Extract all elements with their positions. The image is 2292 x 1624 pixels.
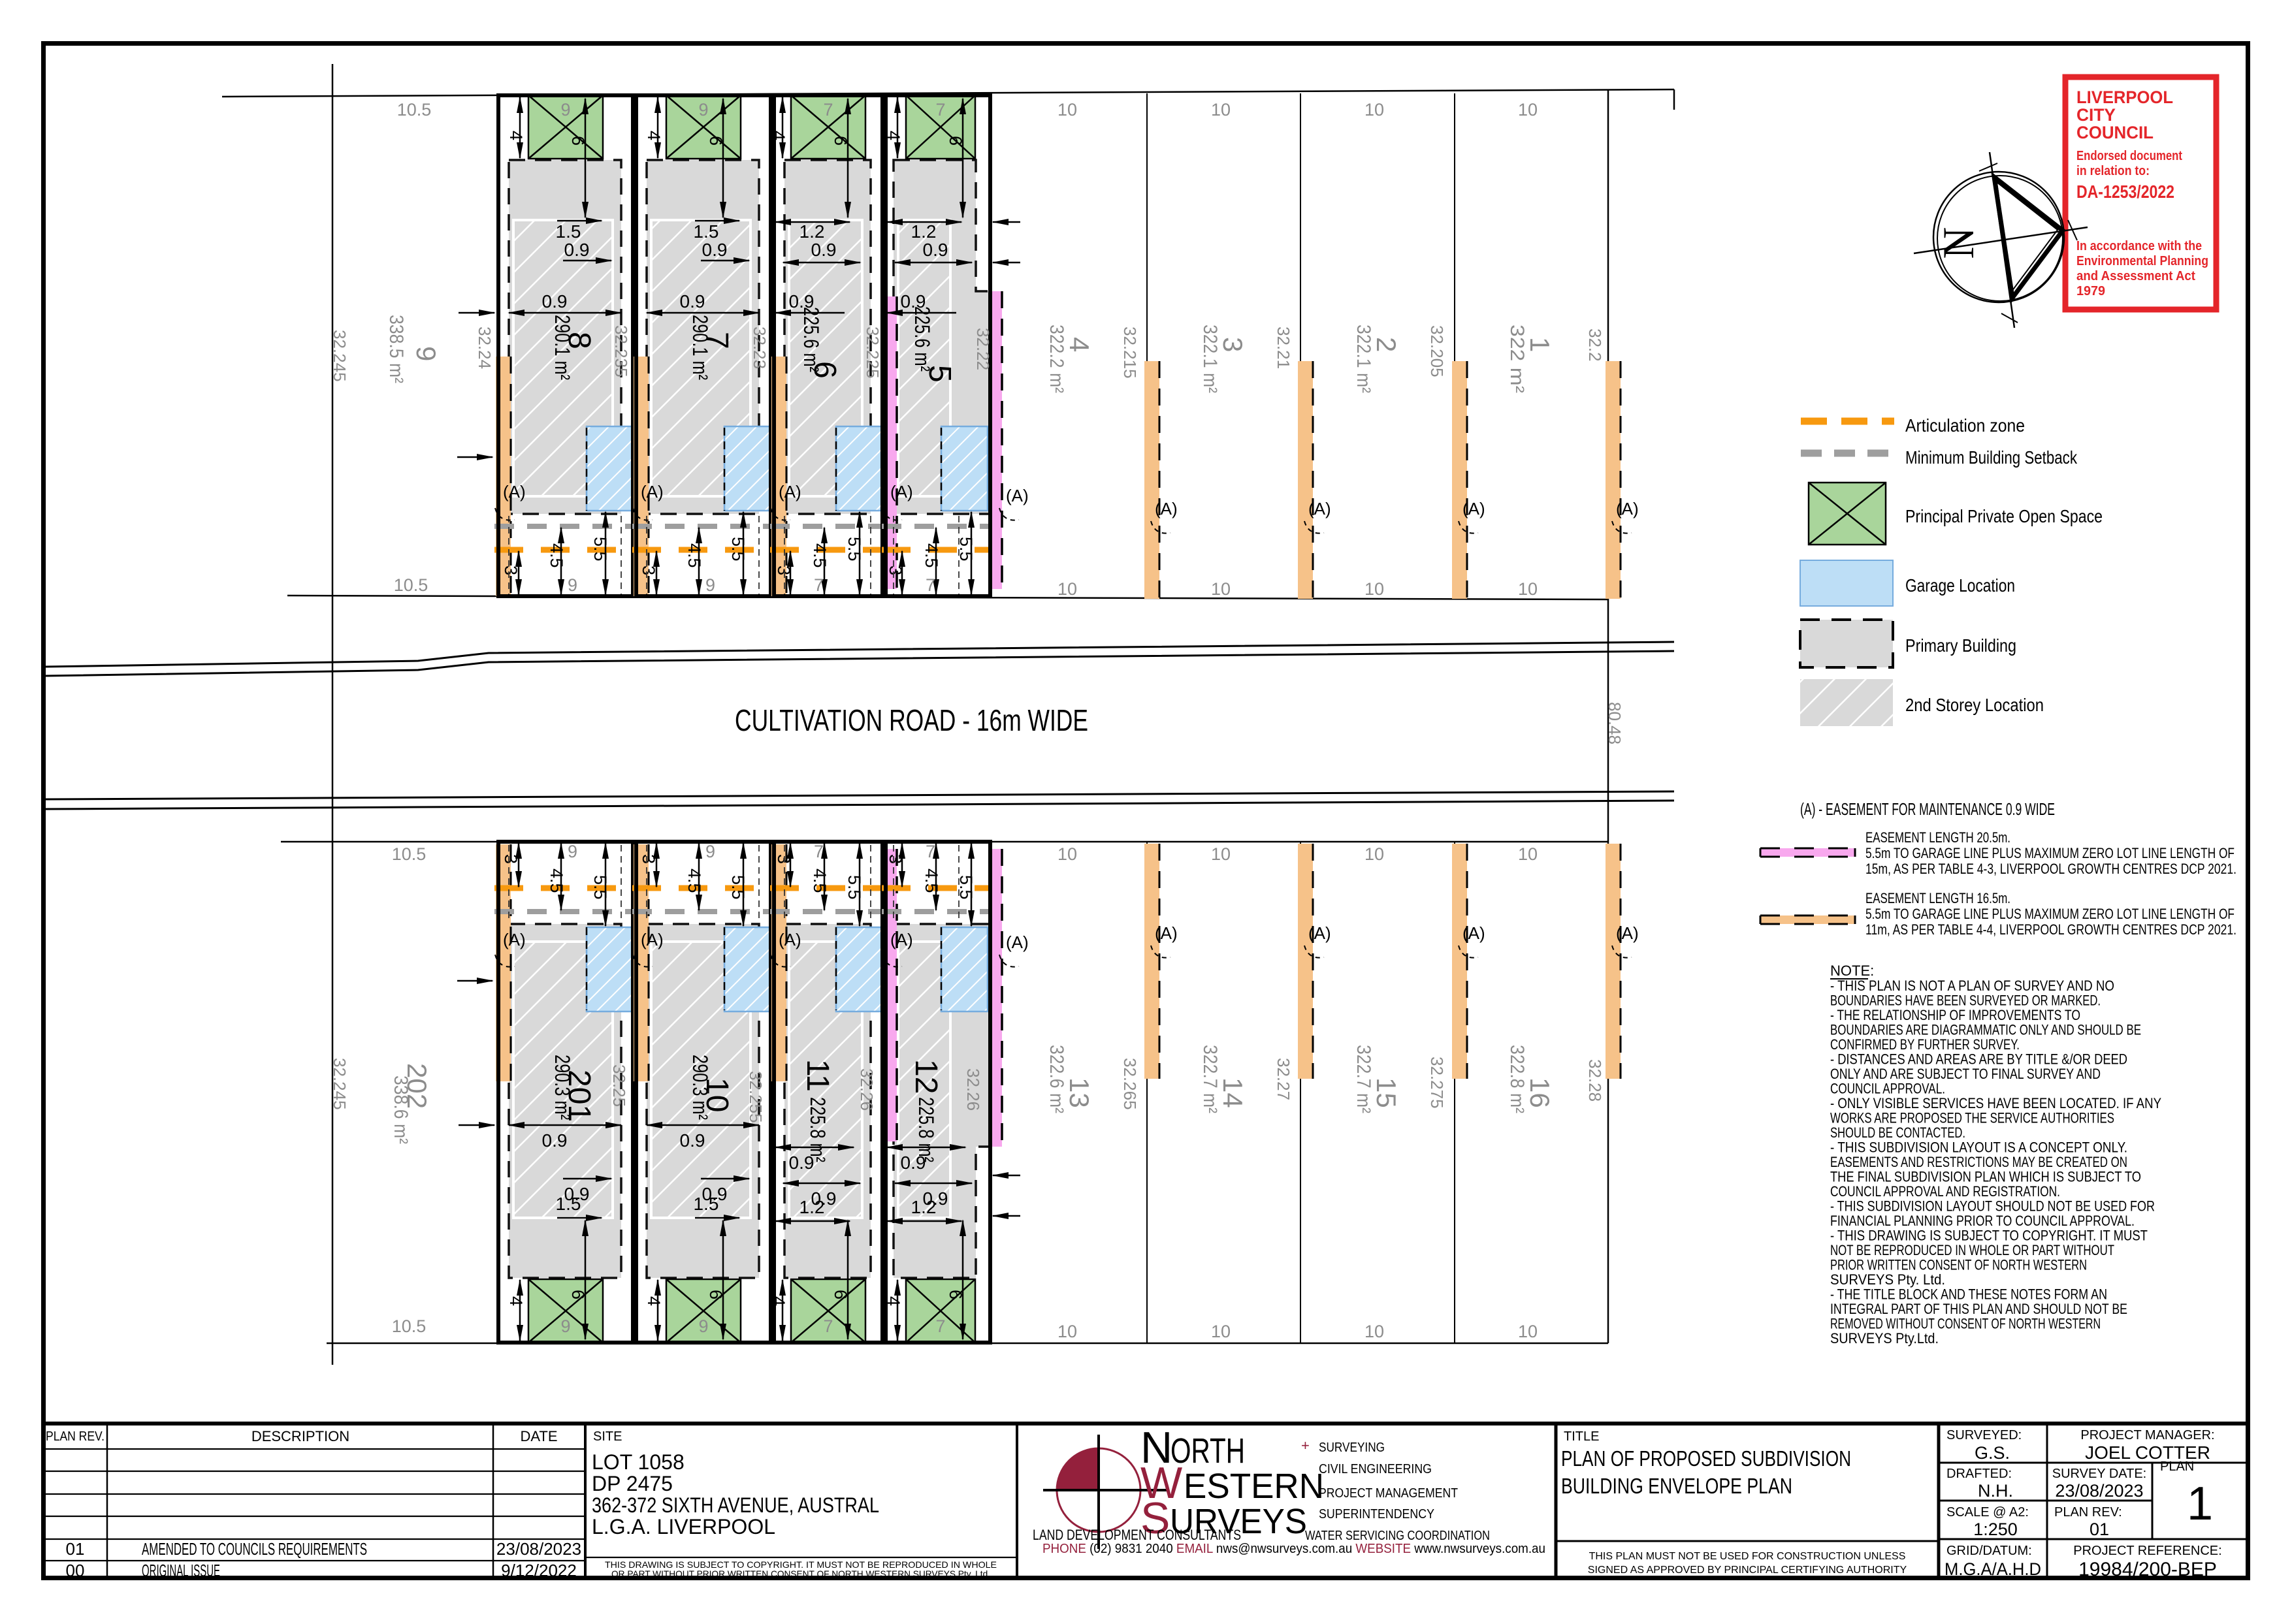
- svg-text:9: 9: [698, 1316, 708, 1336]
- svg-text:4.5: 4.5: [685, 868, 704, 893]
- svg-text:BOUNDARIES ARE DIAGRAMMATIC ON: BOUNDARIES ARE DIAGRAMMATIC ONLY AND SHO…: [1830, 1022, 2141, 1038]
- svg-text:(A): (A): [1616, 923, 1639, 943]
- svg-text:01: 01: [2090, 1520, 2109, 1539]
- svg-text:4: 4: [506, 1296, 526, 1306]
- svg-text:1: 1: [2187, 1478, 2213, 1530]
- svg-text:BUILDING ENVELOPE PLAN: BUILDING ENVELOPE PLAN: [1561, 1474, 1792, 1498]
- svg-text:(A): (A): [1155, 923, 1178, 943]
- svg-text:CULTIVATION ROAD - 16m WIDE: CULTIVATION ROAD - 16m WIDE: [735, 703, 1088, 737]
- svg-text:1.5: 1.5: [694, 1194, 719, 1214]
- svg-text:01: 01: [66, 1539, 85, 1559]
- svg-text:FINANCIAL PLANNING PRIOR TO CO: FINANCIAL PLANNING PRIOR TO COUNCIL APPR…: [1830, 1213, 2135, 1229]
- svg-text:1.5: 1.5: [556, 221, 581, 242]
- svg-text:ESTERN: ESTERN: [1184, 1467, 1324, 1506]
- svg-text:4.5: 4.5: [547, 868, 566, 893]
- svg-text:COUNCIL: COUNCIL: [2076, 123, 2154, 142]
- svg-text:PLAN REV:: PLAN REV:: [2054, 1505, 2122, 1520]
- svg-text:COUNCIL APPROVAL AND REGISTRAT: COUNCIL APPROVAL AND REGISTRATION.: [1830, 1183, 2060, 1200]
- svg-text:4.5: 4.5: [547, 543, 566, 568]
- svg-text:10: 10: [1518, 1322, 1538, 1341]
- svg-text:322.2 m²: 322.2 m²: [1046, 325, 1067, 393]
- svg-text:- THIS SUBDIVISION LAYOUT SHOU: - THIS SUBDIVISION LAYOUT SHOULD NOT BE …: [1830, 1198, 2155, 1215]
- svg-text:PLAN OF PROPOSED SUBDIVISION: PLAN OF PROPOSED SUBDIVISION: [1561, 1446, 1851, 1471]
- svg-text:LAND DEVELOPMENT CONSULTANTS: LAND DEVELOPMENT CONSULTANTS: [1033, 1527, 1241, 1543]
- svg-text:4: 4: [884, 1296, 903, 1306]
- svg-text:M.G.A/A.H.D: M.G.A/A.H.D: [1945, 1559, 2041, 1579]
- svg-text:12: 12: [909, 1059, 943, 1094]
- svg-text:EASEMENTS AND RESTRICTIONS MAY: EASEMENTS AND RESTRICTIONS MAY BE CREATE…: [1830, 1154, 2127, 1170]
- svg-text:4.5: 4.5: [810, 543, 830, 568]
- svg-text:4: 4: [1064, 337, 1095, 352]
- svg-text:3: 3: [886, 565, 905, 575]
- svg-text:N.H.: N.H.: [1978, 1481, 2013, 1501]
- svg-text:7: 7: [935, 1316, 945, 1336]
- svg-text:1.2: 1.2: [799, 1197, 825, 1217]
- svg-text:4: 4: [506, 131, 526, 140]
- svg-text:32.26: 32.26: [963, 1068, 983, 1111]
- svg-text:PLAN REV.: PLAN REV.: [46, 1429, 105, 1444]
- svg-text:32.24: 32.24: [475, 326, 494, 369]
- svg-text:80.48: 80.48: [1605, 702, 1624, 744]
- svg-text:32.235: 32.235: [611, 325, 631, 377]
- svg-text:CIVIL ENGINEERING: CIVIL ENGINEERING: [1319, 1462, 1432, 1476]
- svg-text:1.2: 1.2: [911, 221, 937, 242]
- svg-text:1.2: 1.2: [799, 221, 825, 242]
- svg-text:10: 10: [1057, 1322, 1077, 1341]
- svg-text:9: 9: [705, 842, 715, 861]
- svg-text:(A): (A): [1308, 923, 1331, 943]
- svg-text:Endorsed document: Endorsed document: [2076, 149, 2182, 163]
- svg-text:(A): (A): [1616, 499, 1639, 518]
- svg-text:NOT BE REPRODUCED IN WHOLE OR: NOT BE REPRODUCED IN WHOLE OR PART WITHO…: [1830, 1242, 2114, 1258]
- svg-text:(A): (A): [890, 930, 913, 949]
- svg-text:DATE: DATE: [520, 1428, 557, 1444]
- svg-text:10: 10: [1364, 100, 1384, 119]
- svg-text:(A): (A): [503, 930, 526, 949]
- svg-text:THIS PLAN MUST NOT BE USED FOR: THIS PLAN MUST NOT BE USED FOR CONSTRUCT…: [1589, 1551, 1906, 1562]
- svg-text:CONFIRMED BY FURTHER SURVEY.: CONFIRMED BY FURTHER SURVEY.: [1830, 1036, 2020, 1053]
- svg-text:0.9: 0.9: [542, 1130, 568, 1151]
- svg-text:- THE TITLE BLOCK AND THESE NO: - THE TITLE BLOCK AND THESE NOTES FORM A…: [1830, 1286, 2107, 1303]
- svg-text:- ONLY VISIBLE SERVICES HAVE B: - ONLY VISIBLE SERVICES HAVE BEEN LOCATE…: [1830, 1095, 2161, 1111]
- svg-text:23/08/2023: 23/08/2023: [496, 1539, 581, 1559]
- svg-text:PRIOR WRITTEN CONSENT OF NORTH: PRIOR WRITTEN CONSENT OF NORTH WESTERN: [1830, 1257, 2087, 1273]
- svg-text:GRID/DATUM:: GRID/DATUM:: [1946, 1544, 2032, 1558]
- svg-text:(A): (A): [641, 482, 664, 502]
- svg-text:3: 3: [886, 854, 905, 864]
- svg-text:G.S.: G.S.: [1975, 1443, 2010, 1463]
- svg-text:32.25: 32.25: [609, 1064, 629, 1107]
- svg-text:SURVEYS Pty.Ltd.: SURVEYS Pty.Ltd.: [1830, 1330, 1939, 1346]
- svg-text:0.9: 0.9: [923, 240, 948, 260]
- svg-text:(A): (A): [890, 482, 913, 502]
- svg-text:15: 15: [1371, 1077, 1402, 1108]
- svg-text:9/12/2022: 9/12/2022: [501, 1561, 577, 1580]
- svg-text:4: 4: [644, 1296, 664, 1306]
- svg-text:Principal Private Open Space: Principal Private Open Space: [1905, 506, 2103, 526]
- svg-text:EASEMENT LENGTH 20.5m.: EASEMENT LENGTH 20.5m.: [1865, 829, 2010, 846]
- svg-text:32.21: 32.21: [1274, 326, 1293, 369]
- svg-text:202: 202: [402, 1063, 432, 1109]
- svg-text:6: 6: [706, 1290, 726, 1299]
- svg-text:201: 201: [562, 1070, 596, 1122]
- svg-text:- THIS DRAWING IS SUBJECT TO C: - THIS DRAWING IS SUBJECT TO COPYRIGHT. …: [1830, 1228, 2148, 1244]
- svg-text:- DISTANCES AND AREAS ARE BY T: - DISTANCES AND AREAS ARE BY TITLE &/OR …: [1830, 1051, 2127, 1068]
- svg-text:Environmental Planning: Environmental Planning: [2076, 254, 2208, 268]
- svg-text:SIGNED AS APPROVED BY PRINCIPA: SIGNED AS APPROVED BY PRINCIPAL CERTIFYI…: [1588, 1565, 1907, 1576]
- svg-text:(A): (A): [779, 930, 801, 949]
- svg-text:(A) - EASEMENT FOR MAINTENANCE: (A) - EASEMENT FOR MAINTENANCE 0.9 WIDE: [1800, 799, 2055, 819]
- svg-text:3: 3: [1218, 337, 1248, 352]
- svg-text:10: 10: [1364, 1322, 1384, 1341]
- svg-text:32.265: 32.265: [1120, 1058, 1140, 1110]
- svg-text:1: 1: [1525, 337, 1555, 352]
- svg-text:7: 7: [935, 100, 945, 119]
- svg-text:10: 10: [1518, 579, 1538, 599]
- svg-text:5.5m TO GARAGE LINE PLUS MAXIM: 5.5m TO GARAGE LINE PLUS MAXIMUM ZERO LO…: [1865, 845, 2235, 861]
- svg-text:10.5: 10.5: [392, 1316, 427, 1336]
- svg-text:32.2: 32.2: [1585, 328, 1605, 362]
- svg-text:6: 6: [946, 136, 965, 146]
- svg-text:32.215: 32.215: [1120, 326, 1140, 379]
- svg-text:3: 3: [501, 565, 521, 575]
- svg-text:11: 11: [800, 1059, 835, 1092]
- svg-text:0.9: 0.9: [680, 291, 705, 311]
- svg-text:(A): (A): [1155, 499, 1178, 518]
- svg-text:PROJECT MANAGER:: PROJECT MANAGER:: [2080, 1428, 2214, 1442]
- svg-text:PLAN: PLAN: [2160, 1459, 2194, 1474]
- svg-text:LIVERPOOL: LIVERPOOL: [2076, 88, 2173, 107]
- svg-text:16: 16: [1525, 1077, 1555, 1108]
- svg-text:5.5: 5.5: [845, 537, 864, 562]
- svg-text:SURVEYING: SURVEYING: [1319, 1441, 1385, 1455]
- svg-text:1:250: 1:250: [1973, 1520, 2018, 1539]
- svg-text:SCALE @ A2:: SCALE @ A2:: [1946, 1505, 2029, 1520]
- svg-text:23/08/2023: 23/08/2023: [2055, 1481, 2143, 1501]
- svg-text:10: 10: [1057, 844, 1077, 864]
- svg-text:SURVEYED:: SURVEYED:: [1946, 1428, 2022, 1442]
- svg-text:2nd Storey Location: 2nd Storey Location: [1905, 695, 2044, 715]
- svg-text:4.5: 4.5: [685, 543, 704, 568]
- svg-text:7: 7: [700, 332, 734, 349]
- svg-text:Articulation zone: Articulation zone: [1905, 415, 2025, 436]
- svg-text:5.5: 5.5: [590, 537, 610, 562]
- svg-text:9: 9: [698, 100, 708, 119]
- svg-text:10: 10: [1211, 844, 1231, 864]
- svg-text:SURVEYS Pty. Ltd.: SURVEYS Pty. Ltd.: [1830, 1271, 1945, 1288]
- svg-text:10: 10: [1057, 100, 1077, 119]
- svg-text:322.1 m²: 322.1 m²: [1353, 325, 1374, 393]
- svg-text:7: 7: [823, 1316, 833, 1336]
- svg-text:19984/200-BEP: 19984/200-BEP: [2078, 1559, 2217, 1580]
- svg-text:in relation to:: in relation to:: [2076, 164, 2150, 178]
- svg-text:- THE RELATIONSHIP OF IMPROVEM: - THE RELATIONSHIP OF IMPROVEMENTS TO: [1830, 1007, 2080, 1023]
- svg-text:32.27: 32.27: [1274, 1058, 1293, 1100]
- svg-text:5.5: 5.5: [728, 537, 748, 562]
- svg-text:4: 4: [769, 1296, 788, 1306]
- svg-text:3: 3: [639, 854, 658, 864]
- svg-text:4.5: 4.5: [922, 868, 941, 893]
- svg-text:9: 9: [705, 575, 715, 595]
- svg-text:SITE: SITE: [593, 1429, 622, 1444]
- svg-text:+: +: [1301, 1437, 1310, 1454]
- svg-text:10.5: 10.5: [392, 844, 427, 864]
- svg-text:COUNCIL APPROVAL.: COUNCIL APPROVAL.: [1830, 1081, 1945, 1097]
- svg-text:In accordance with the: In accordance with the: [2076, 239, 2202, 253]
- svg-text:(A): (A): [503, 482, 526, 502]
- svg-text:ORIGINAL ISSUE: ORIGINAL ISSUE: [142, 1561, 220, 1580]
- svg-text:0.9: 0.9: [564, 240, 590, 260]
- svg-text:OR PART WITHOUT PRIOR WRITTEN: OR PART WITHOUT PRIOR WRITTEN CONSENT OF…: [611, 1568, 990, 1579]
- svg-text:10.5: 10.5: [394, 575, 428, 595]
- svg-text:338.5 m²: 338.5 m²: [385, 315, 407, 383]
- svg-text:1.2: 1.2: [911, 1197, 937, 1217]
- svg-text:10: 10: [1518, 100, 1538, 119]
- svg-text:and Assessment Act: and Assessment Act: [2076, 269, 2195, 283]
- svg-text:32.245: 32.245: [330, 1058, 349, 1110]
- svg-text:10: 10: [1057, 579, 1077, 599]
- svg-text:32.26: 32.26: [857, 1068, 877, 1111]
- svg-text:00: 00: [66, 1561, 85, 1580]
- svg-text:DESCRIPTION: DESCRIPTION: [251, 1428, 349, 1444]
- svg-text:6: 6: [568, 1290, 588, 1299]
- svg-text:14: 14: [1218, 1077, 1248, 1108]
- svg-text:32.245: 32.245: [330, 330, 349, 382]
- svg-text:- THIS PLAN IS NOT A PLAN OF S: - THIS PLAN IS NOT A PLAN OF SURVEY AND …: [1830, 978, 2114, 994]
- svg-text:6: 6: [831, 136, 850, 146]
- svg-text:4.5: 4.5: [810, 868, 830, 893]
- svg-text:(A): (A): [779, 482, 801, 502]
- svg-text:32.255: 32.255: [746, 1071, 766, 1123]
- svg-text:1.5: 1.5: [694, 221, 719, 242]
- svg-text:7: 7: [926, 575, 935, 595]
- svg-text:32.205: 32.205: [1427, 325, 1447, 377]
- svg-text:- THIS SUBDIVISION LAYOUT IS A: - THIS SUBDIVISION LAYOUT IS A CONCEPT O…: [1830, 1139, 2127, 1156]
- svg-text:INTEGRAL PART OF THIS PLAN AND: INTEGRAL PART OF THIS PLAN AND SHOULD NO…: [1830, 1301, 2127, 1317]
- svg-text:0.9: 0.9: [542, 291, 568, 311]
- svg-text:7: 7: [823, 100, 833, 119]
- svg-text:ONLY AND ARE SUBJECT TO FINAL: ONLY AND ARE SUBJECT TO FINAL SURVEY AND: [1830, 1066, 2101, 1082]
- svg-text:32.275: 32.275: [1427, 1057, 1447, 1109]
- svg-text:5.5m TO GARAGE LINE PLUS MAXIM: 5.5m TO GARAGE LINE PLUS MAXIMUM ZERO LO…: [1865, 906, 2235, 922]
- svg-text:(A): (A): [1006, 486, 1029, 505]
- svg-text:10: 10: [1211, 579, 1231, 599]
- svg-text:TITLE: TITLE: [1564, 1429, 1599, 1444]
- svg-text:32.28: 32.28: [1585, 1059, 1605, 1102]
- svg-text:362-372 SIXTH AVENUE, AUSTRAL: 362-372 SIXTH AVENUE, AUSTRAL: [592, 1493, 879, 1517]
- svg-text:3: 3: [774, 854, 794, 864]
- svg-text:7: 7: [814, 575, 824, 595]
- svg-text:6: 6: [831, 1290, 850, 1299]
- svg-text:0.9: 0.9: [680, 1130, 705, 1151]
- svg-text:LOT 1058: LOT 1058: [592, 1450, 685, 1474]
- svg-text:8: 8: [562, 332, 596, 349]
- svg-text:2: 2: [1371, 337, 1402, 352]
- svg-text:6: 6: [706, 136, 726, 146]
- svg-text:4: 4: [644, 131, 664, 140]
- svg-text:3: 3: [774, 565, 794, 575]
- svg-text:BOUNDARIES HAVE BEEN SURVEYED: BOUNDARIES HAVE BEEN SURVEYED OR MARKED.: [1830, 993, 2101, 1009]
- svg-text:(A): (A): [1462, 923, 1485, 943]
- svg-text:4: 4: [769, 131, 788, 140]
- svg-text:9: 9: [568, 575, 577, 595]
- svg-text:225.8 m²: 225.8 m²: [806, 1097, 830, 1162]
- svg-text:0.9: 0.9: [702, 240, 728, 260]
- svg-text:6: 6: [946, 1290, 965, 1299]
- svg-text:WORKS ARE PROPOSED THE SERVICE: WORKS ARE PROPOSED THE SERVICE AUTHORITI…: [1830, 1110, 2114, 1126]
- svg-text:32.23: 32.23: [750, 326, 769, 369]
- svg-text:SURVEY DATE:: SURVEY DATE:: [2052, 1467, 2147, 1481]
- svg-text:SUPERINTENDENCY: SUPERINTENDENCY: [1319, 1507, 1434, 1521]
- svg-text:6: 6: [568, 136, 588, 146]
- svg-text:3: 3: [639, 565, 658, 575]
- svg-text:PROJECT MANAGEMENT: PROJECT MANAGEMENT: [1319, 1486, 1458, 1501]
- svg-text:(A): (A): [1462, 499, 1485, 518]
- svg-text:L.G.A. LIVERPOOL: L.G.A. LIVERPOOL: [592, 1515, 775, 1538]
- svg-text:(A): (A): [641, 930, 664, 949]
- svg-text:5: 5: [922, 365, 957, 383]
- svg-text:CITY: CITY: [2076, 105, 2116, 125]
- svg-text:1.5: 1.5: [556, 1194, 581, 1214]
- svg-text:5.5: 5.5: [590, 875, 610, 900]
- svg-text:Primary Building: Primary Building: [1905, 635, 2016, 656]
- svg-text:3: 3: [501, 854, 521, 864]
- svg-text:(A): (A): [1308, 499, 1331, 518]
- svg-text:Garage Location: Garage Location: [1905, 575, 2015, 596]
- svg-text:225.8 m²: 225.8 m²: [914, 1097, 938, 1162]
- svg-text:PHONE (02) 9831 2040 EMAIL nw: PHONE (02) 9831 2040 EMAIL nws@nwsurveys…: [1042, 1542, 1545, 1556]
- svg-text:11m, AS PER TABLE 4-4, LIVERPO: 11m, AS PER TABLE 4-4, LIVERPOOL GROWTH …: [1865, 921, 2236, 938]
- svg-text:10.5: 10.5: [397, 100, 432, 119]
- svg-text:10: 10: [700, 1077, 734, 1112]
- svg-text:10: 10: [1211, 100, 1231, 119]
- svg-text:DP 2475: DP 2475: [592, 1472, 673, 1495]
- svg-text:10: 10: [1364, 579, 1384, 599]
- svg-text:(A): (A): [1006, 932, 1029, 952]
- svg-text:Minimum Building Setback: Minimum Building Setback: [1905, 447, 2078, 468]
- svg-text:DA-1253/2022: DA-1253/2022: [2076, 182, 2174, 202]
- svg-text:N: N: [1933, 227, 1983, 259]
- svg-text:225.6 m²: 225.6 m²: [911, 306, 934, 372]
- svg-text:15m, AS PER TABLE 4-3, LIVERPO: 15m, AS PER TABLE 4-3, LIVERPOOL GROWTH …: [1865, 861, 2236, 877]
- svg-text:7: 7: [926, 842, 935, 861]
- svg-text:32.22: 32.22: [973, 328, 993, 370]
- svg-text:10: 10: [1364, 844, 1384, 864]
- svg-text:322.1 m²: 322.1 m²: [1199, 325, 1221, 393]
- svg-text:13: 13: [1064, 1077, 1095, 1108]
- svg-text:9: 9: [411, 346, 442, 361]
- svg-text:0.9: 0.9: [811, 240, 837, 260]
- svg-text:32.225: 32.225: [863, 326, 882, 379]
- svg-text:DRAFTED:: DRAFTED:: [1946, 1467, 2012, 1481]
- svg-text:322 m²: 322 m²: [1506, 325, 1528, 393]
- svg-text:10: 10: [1211, 1322, 1231, 1341]
- svg-text:REMOVED WITHOUT CONSENT OF NOR: REMOVED WITHOUT CONSENT OF NORTH WESTERN: [1830, 1316, 2101, 1332]
- svg-text:9: 9: [560, 1316, 570, 1336]
- svg-text:5.5: 5.5: [728, 875, 748, 900]
- svg-text:AMENDED TO COUNCILS REQUIREMEN: AMENDED TO COUNCILS REQUIREMENTS: [142, 1539, 367, 1559]
- svg-text:5.5: 5.5: [845, 875, 864, 900]
- svg-text:NOTE:: NOTE:: [1830, 963, 1874, 979]
- svg-text:10: 10: [1518, 844, 1538, 864]
- svg-text:7: 7: [814, 842, 824, 861]
- svg-text:4: 4: [884, 131, 903, 140]
- svg-text:THE FINAL SUBDIVISION PLAN WHI: THE FINAL SUBDIVISION PLAN WHICH IS SUBJ…: [1830, 1169, 2141, 1185]
- svg-text:1979: 1979: [2076, 284, 2105, 298]
- svg-text:WATER SERVICING COORDINATION: WATER SERVICING COORDINATION: [1305, 1529, 1490, 1543]
- svg-text:SHOULD BE CONTACTED.: SHOULD BE CONTACTED.: [1830, 1124, 1965, 1141]
- svg-text:6: 6: [807, 361, 842, 379]
- svg-text:EASEMENT LENGTH 16.5m.: EASEMENT LENGTH 16.5m.: [1865, 890, 2010, 906]
- svg-text:9: 9: [568, 842, 577, 861]
- svg-text:9: 9: [560, 100, 570, 119]
- svg-text:4.5: 4.5: [922, 543, 941, 568]
- svg-text:PROJECT REFERENCE:: PROJECT REFERENCE:: [2073, 1544, 2221, 1558]
